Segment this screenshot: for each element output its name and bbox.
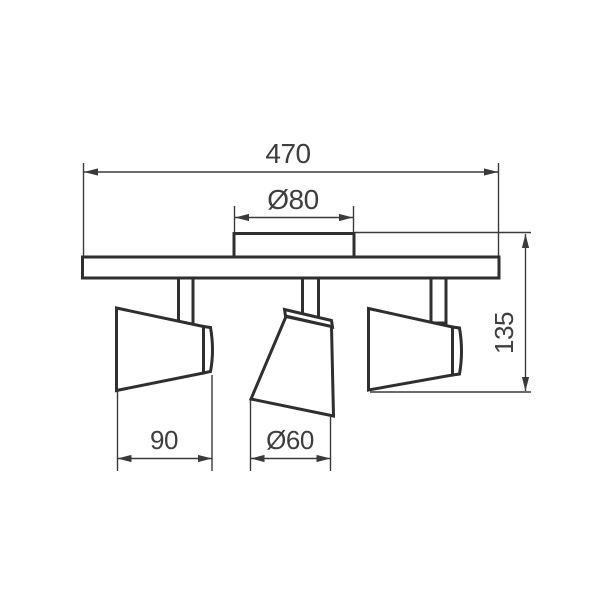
spotlight-dimension-drawing: 470 Ø80 135 90 Ø60 [0, 0, 600, 600]
dimension-label-total-height: 135 [489, 312, 519, 354]
spotlight-middle [251, 310, 334, 417]
arrowhead-left [84, 168, 98, 175]
arrowhead-right [484, 168, 498, 175]
arrowhead-right [317, 455, 331, 462]
arrowhead-bottom [522, 377, 529, 391]
dimension-label-head-diameter: Ø60 [266, 425, 314, 455]
stem-middle [303, 278, 319, 318]
spotlight-left-lens-ring [204, 327, 213, 374]
arrowhead-right [339, 214, 353, 221]
spotlight-right [369, 309, 462, 391]
dimension-label-head-width: 90 [150, 425, 178, 455]
ceiling-canopy [234, 234, 354, 258]
stem-left [179, 278, 194, 324]
arrowhead-right [198, 455, 212, 462]
stem-right [431, 278, 446, 323]
arrowhead-top [522, 234, 529, 248]
arrowhead-left [251, 455, 265, 462]
dimension-canopy-diameter: Ø80 [235, 184, 354, 233]
spotlight-right-lens-ring [453, 327, 462, 375]
dimension-label-total-width: 470 [265, 138, 310, 169]
spotlight-middle-body [251, 317, 334, 417]
fixture-outline [83, 234, 500, 417]
dimension-head-width: 90 [118, 375, 213, 471]
technical-drawing-canvas: 470 Ø80 135 90 Ø60 [0, 0, 600, 600]
spotlight-left [117, 308, 213, 391]
dimension-label-canopy-diameter: Ø80 [267, 184, 318, 215]
arrowhead-left [235, 214, 249, 221]
arrowhead-left [118, 455, 132, 462]
mounting-bar [83, 257, 500, 278]
